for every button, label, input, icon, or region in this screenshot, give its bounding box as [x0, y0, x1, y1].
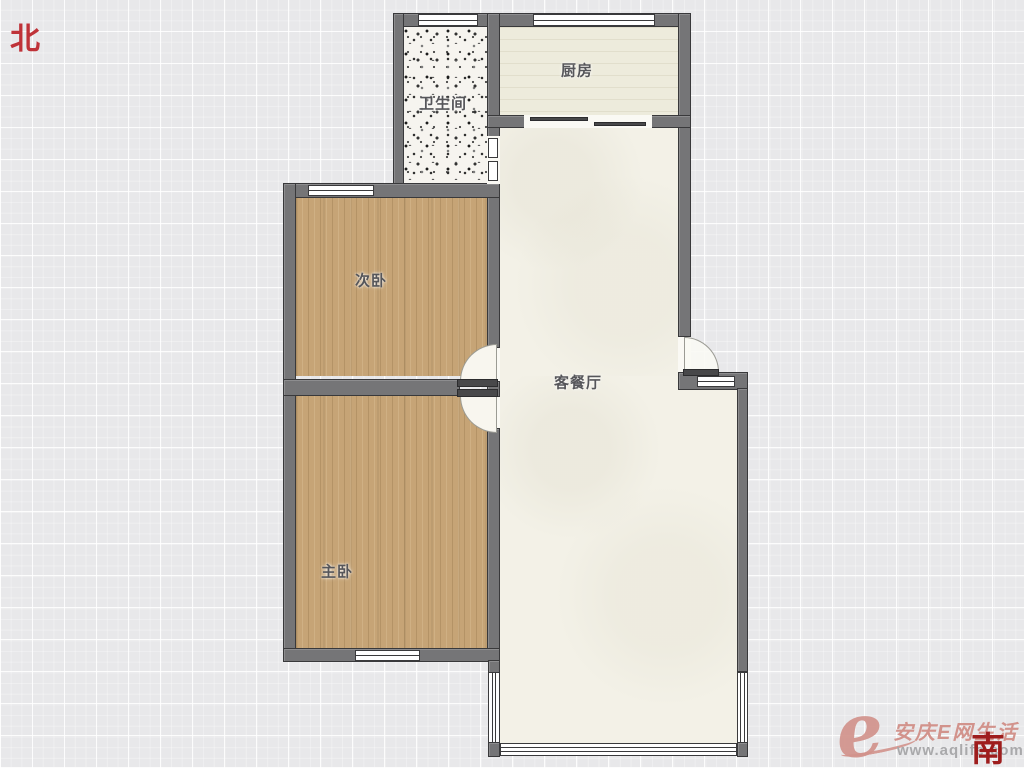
- window-entry-sidelight: [697, 376, 735, 387]
- floorplan-canvas: 北 卫生间 厨房 次: [0, 0, 1024, 768]
- wall-east-lower: [737, 388, 748, 672]
- door-bathroom-panel-top: [488, 138, 498, 158]
- wall-bedrooms-divider: [283, 379, 460, 396]
- wall-west: [283, 183, 296, 662]
- living-floor-upper: [500, 128, 678, 390]
- compass-south-label: 南: [971, 722, 1005, 768]
- living-floor-lower: [500, 376, 737, 743]
- door-bedroom-master-leaf: [457, 389, 498, 397]
- entry-door-swing: [684, 337, 719, 372]
- sliding-door-panel-left: [530, 117, 588, 121]
- wall-corner-southeast: [737, 742, 748, 757]
- door-bedroom-second-leaf: [457, 379, 498, 387]
- room-label-second-bedroom: 次卧: [355, 274, 387, 289]
- room-label-living-dining: 客餐厅: [554, 376, 602, 391]
- window-bathroom-north: [418, 14, 478, 26]
- wall-east-upper: [678, 13, 691, 337]
- window-living-west: [488, 672, 500, 743]
- entry-door-leaf: [683, 369, 719, 376]
- window-bedroom-second-north: [308, 185, 374, 196]
- sliding-door-kitchen: [524, 115, 652, 128]
- window-bedroom-master-south: [355, 650, 420, 661]
- door-bathroom: [487, 136, 500, 184]
- window-living-east: [737, 672, 748, 743]
- bedroom-master-floor: [296, 396, 487, 650]
- wall-bathroom-west: [393, 13, 404, 198]
- room-label-bathroom: 卫生间: [419, 97, 467, 112]
- compass-north-label: 北: [10, 14, 40, 58]
- wall-corner-southwest: [488, 742, 500, 757]
- bedroom-second-floor: [296, 198, 487, 376]
- window-kitchen-north: [533, 14, 655, 26]
- wall-mid-vertical-lower: [487, 428, 500, 662]
- door-bathroom-panel-bottom: [488, 161, 498, 181]
- room-label-kitchen: 厨房: [561, 64, 593, 79]
- window-living-south: [500, 743, 737, 756]
- watermark-logo-e-icon: e: [832, 692, 887, 768]
- sliding-door-panel-right: [594, 122, 646, 126]
- room-label-master-bedroom: 主卧: [321, 565, 353, 580]
- wall-mid-vertical-upper: [487, 182, 500, 348]
